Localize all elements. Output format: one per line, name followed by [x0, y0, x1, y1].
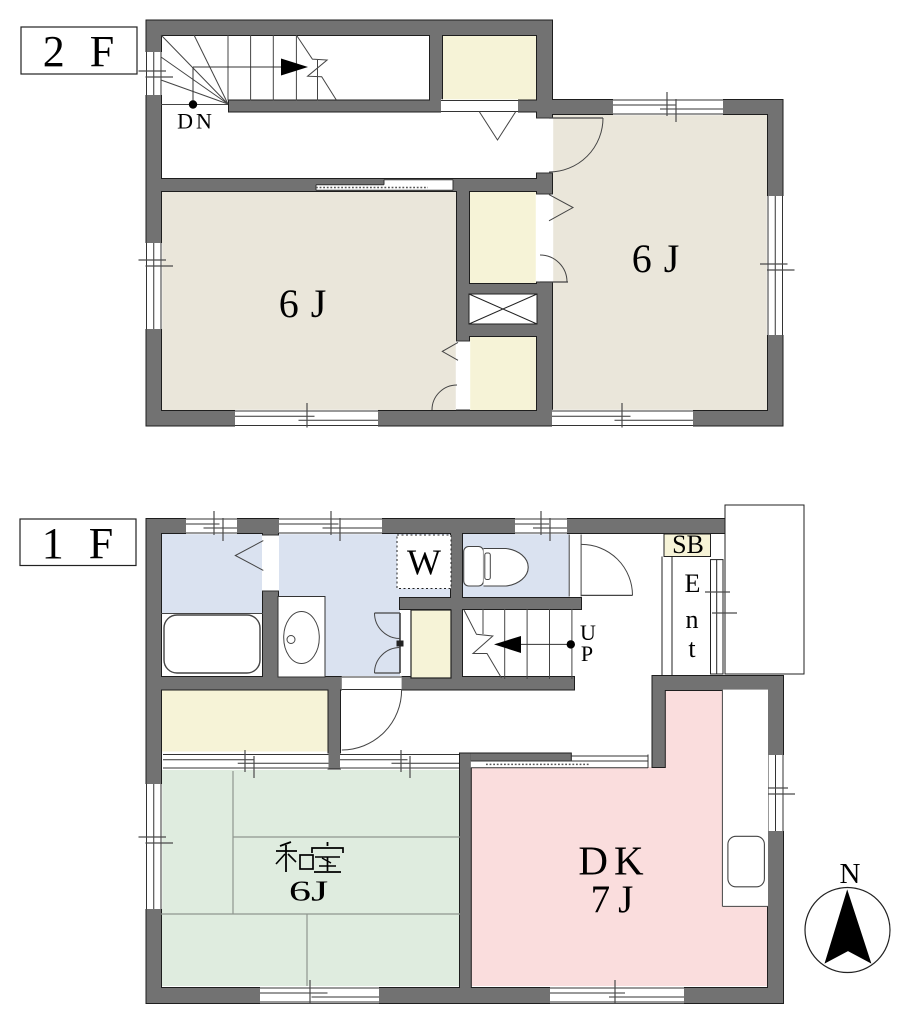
svg-text:P: P: [581, 641, 593, 666]
svg-text:1 F: 1 F: [42, 519, 120, 568]
svg-text:7J: 7J: [591, 878, 642, 921]
svg-text:t: t: [688, 634, 696, 663]
svg-text:n: n: [686, 605, 699, 634]
svg-text:6 J: 6 J: [279, 281, 328, 326]
svg-text:E: E: [685, 569, 701, 598]
svg-text:6J: 6J: [289, 876, 328, 907]
svg-text:6 J: 6 J: [632, 236, 681, 281]
svg-text:DN: DN: [177, 109, 215, 134]
svg-text:SB: SB: [672, 530, 704, 559]
svg-text:N: N: [840, 858, 861, 890]
svg-text:W: W: [407, 542, 441, 582]
svg-text:2 F: 2 F: [43, 27, 121, 76]
svg-text:DK: DK: [578, 838, 649, 884]
